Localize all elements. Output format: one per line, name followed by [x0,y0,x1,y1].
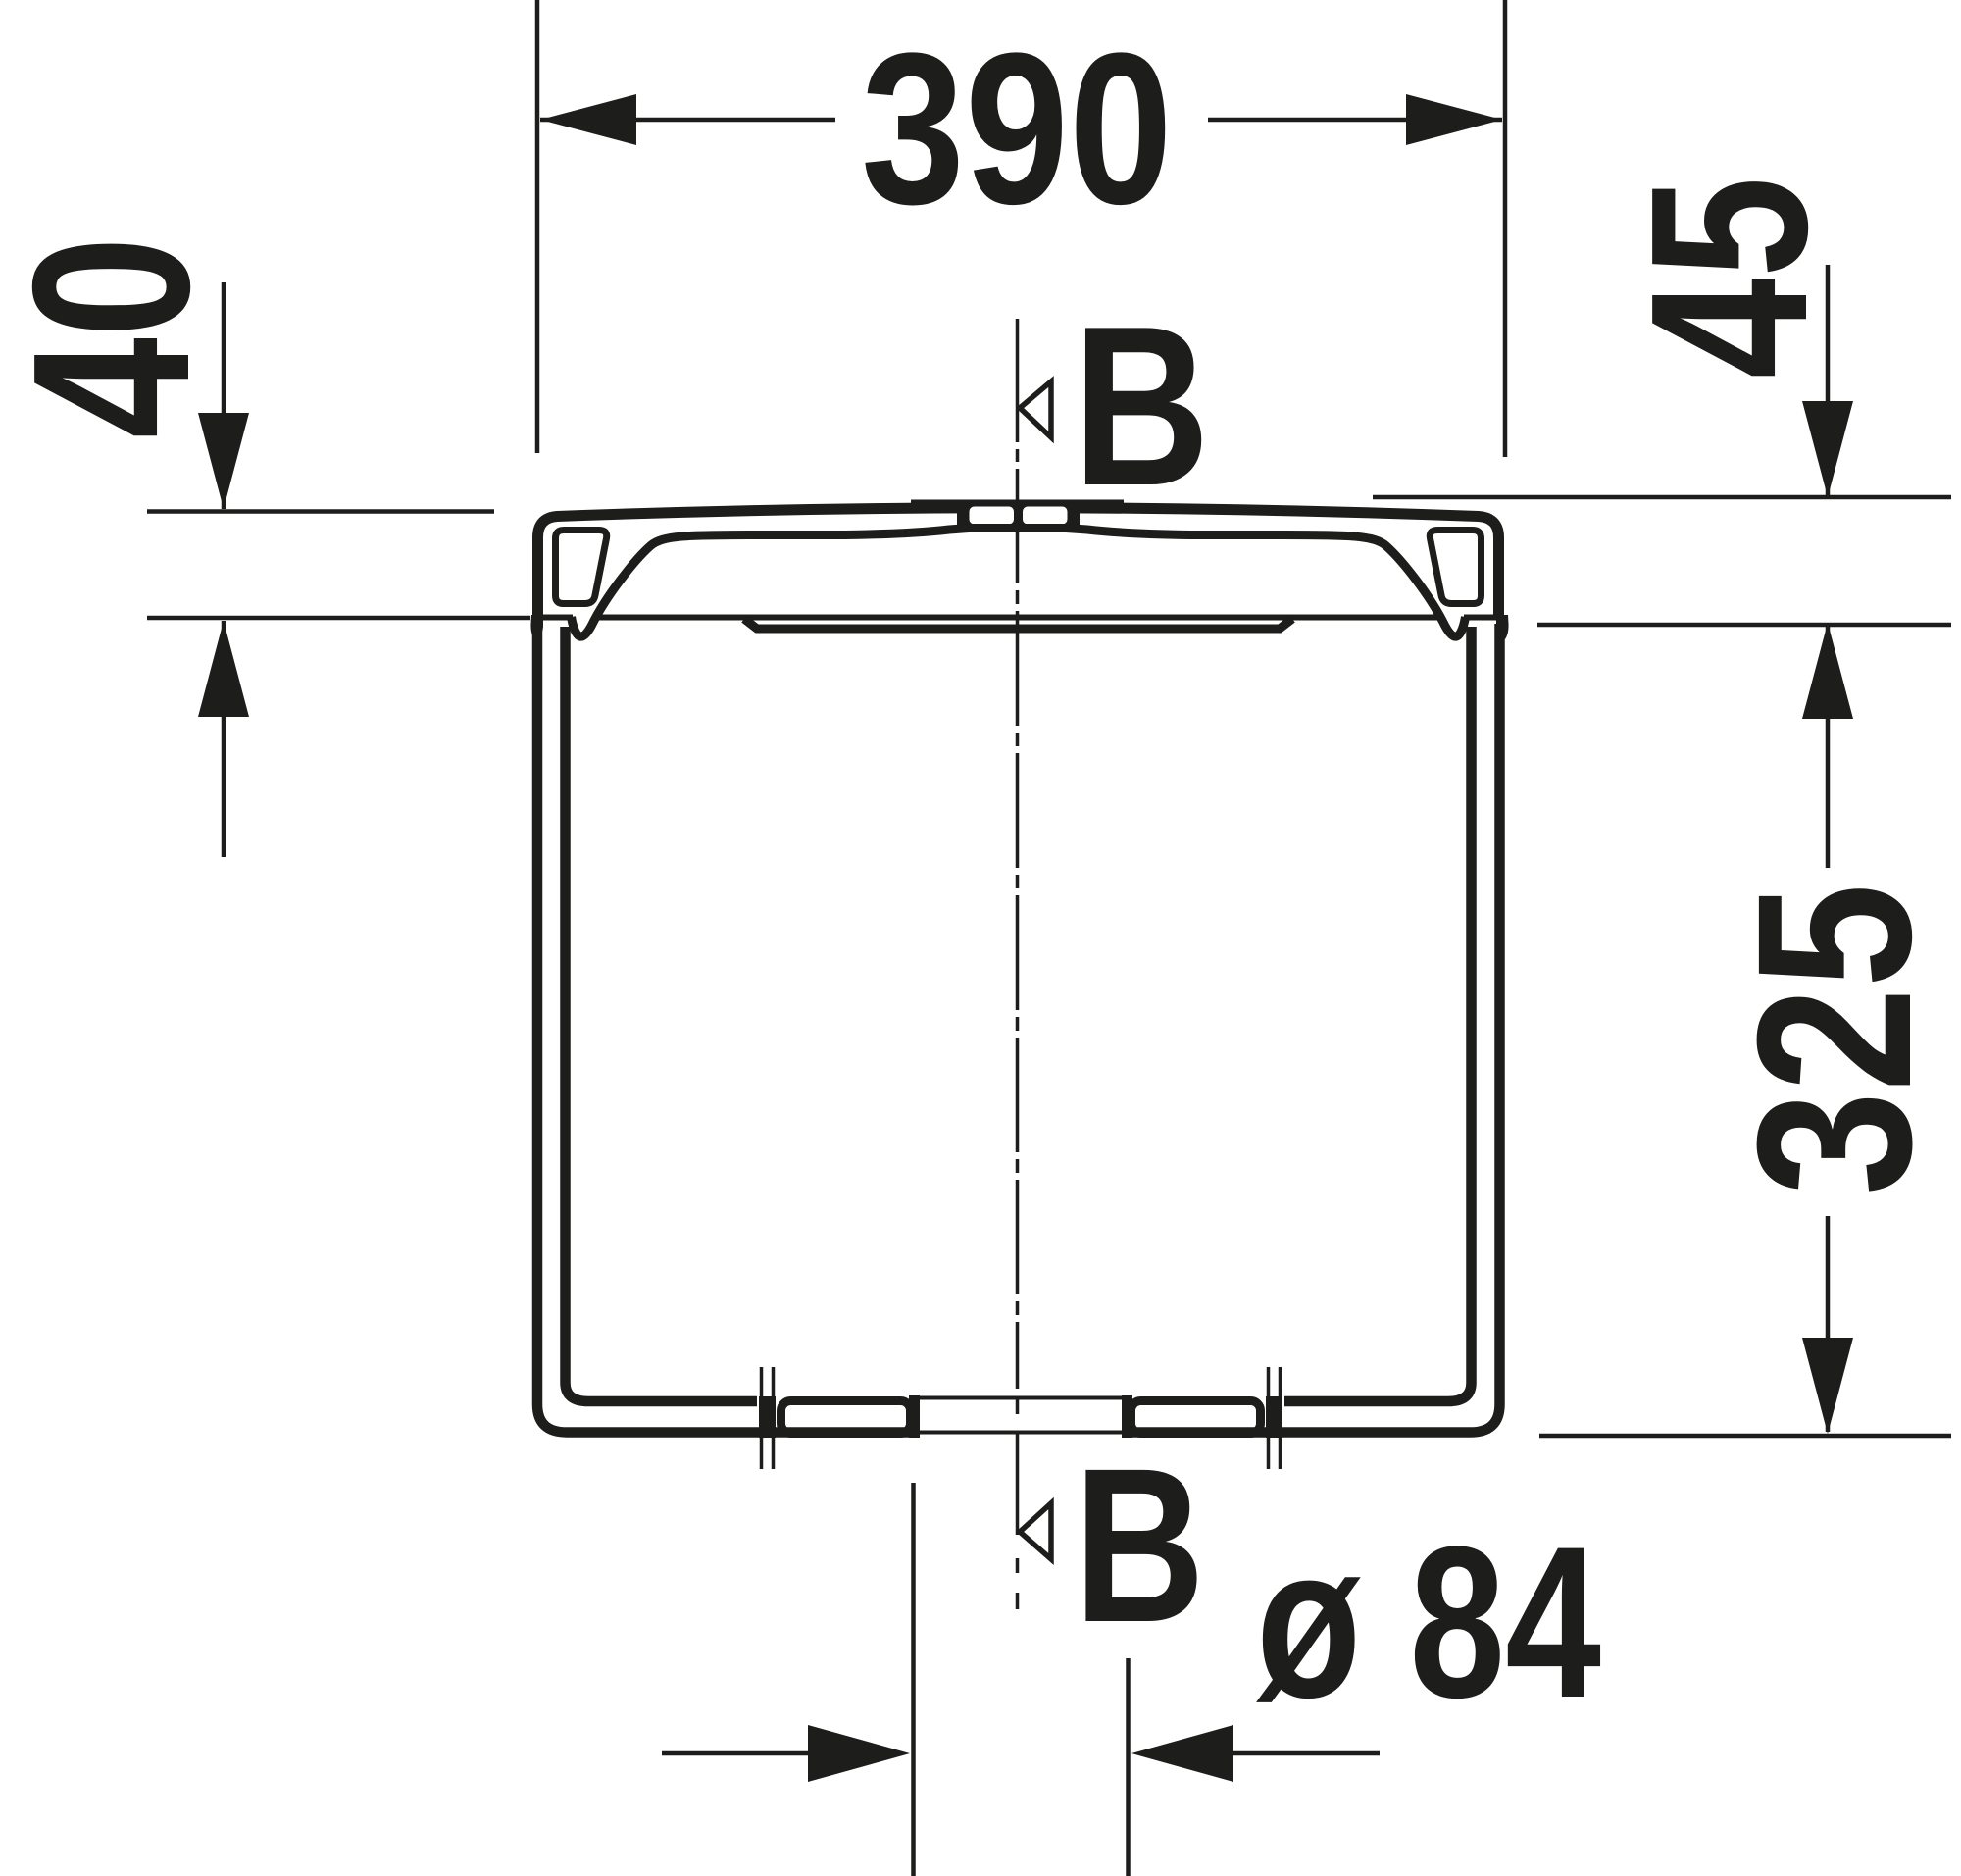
svg-text:B: B [1074,1423,1205,1668]
svg-text:45: 45 [1605,177,1854,379]
svg-text:325: 325 [1712,884,1957,1195]
svg-text:390: 390 [861,8,1173,249]
svg-text:40: 40 [0,236,236,438]
svg-text:B: B [1073,279,1210,533]
svg-text:ø 84: ø 84 [1256,1501,1601,1743]
